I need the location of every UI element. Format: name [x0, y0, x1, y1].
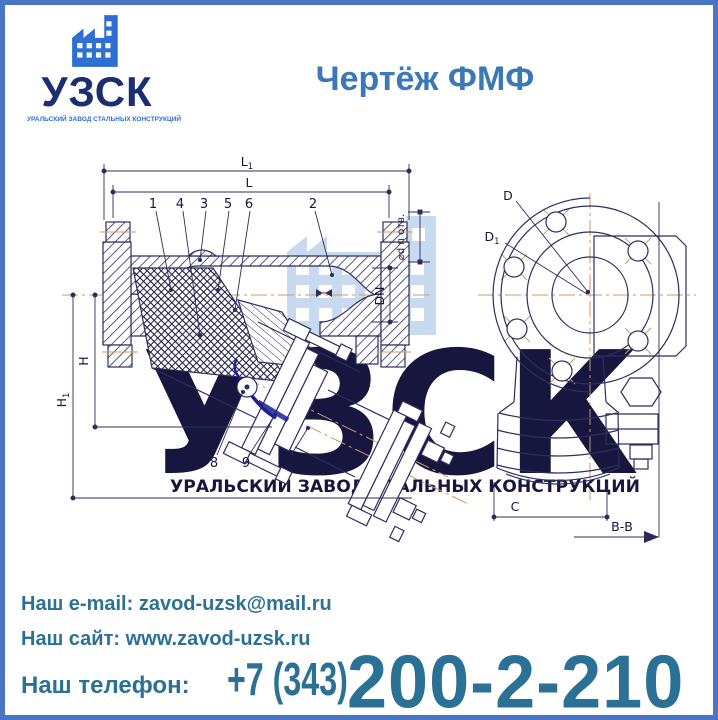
phone-area-code: +7 (343)	[227, 656, 348, 702]
email-value: zavod-uzsk@mail.ru	[139, 593, 332, 615]
page-title: Чертёж ФМФ	[255, 60, 595, 99]
callout-4: 4	[176, 197, 184, 212]
email-label: Наш e-mail:	[21, 593, 133, 615]
dim-label-l: L	[246, 175, 253, 190]
dim-label-h1: H1	[54, 393, 72, 408]
dim-label-d1: D1	[484, 229, 499, 247]
site-value: www.zavod-uzsk.ru	[126, 628, 311, 650]
dim-label-c: C	[511, 499, 520, 514]
dim-label-holes: ⌀d п отв.	[396, 214, 407, 260]
callout-7: 7	[285, 456, 293, 471]
callout-8: 8	[210, 456, 218, 471]
phone-number: 200-2-210	[347, 645, 684, 720]
dim-label-l1: L1	[241, 154, 253, 172]
callout-6: 6	[245, 197, 253, 212]
email-line: Наш e-mail: zavod-uzsk@mail.ru	[21, 594, 332, 614]
callout-2: 2	[309, 197, 317, 212]
callout-1: 1	[149, 197, 157, 212]
callout-3: 3	[200, 197, 208, 212]
technical-drawing: УЗСК УРАЛЬСКИЙ ЗАВОД СТАЛЬНЫХ КОНСТРУКЦИ…	[0, 140, 718, 585]
logo-tagline: УРАЛЬСКИЙ ЗАВОД СТАЛЬНЫХ КОНСТРУКЦИЙ	[27, 116, 167, 123]
factory-icon	[70, 13, 124, 69]
dim-label-h: H	[76, 356, 91, 365]
phone-label: Наш телефон:	[21, 674, 190, 698]
dim-label-dn: DN	[372, 287, 387, 306]
dim-label-d: D	[503, 188, 513, 203]
callout-9: 9	[242, 456, 250, 471]
site-line: Наш сайт: www.zavod-uzsk.ru	[21, 629, 310, 649]
callout-5: 5	[224, 197, 232, 212]
page: УЗСК УРАЛЬСКИЙ ЗАВОД СТАЛЬНЫХ КОНСТРУКЦИ…	[0, 0, 718, 720]
logo-name: УЗСК	[27, 71, 167, 113]
site-label: Наш сайт:	[21, 628, 120, 650]
company-logo: УЗСК УРАЛЬСКИЙ ЗАВОД СТАЛЬНЫХ КОНСТРУКЦИ…	[27, 13, 167, 123]
section-label: В-В	[611, 519, 633, 534]
